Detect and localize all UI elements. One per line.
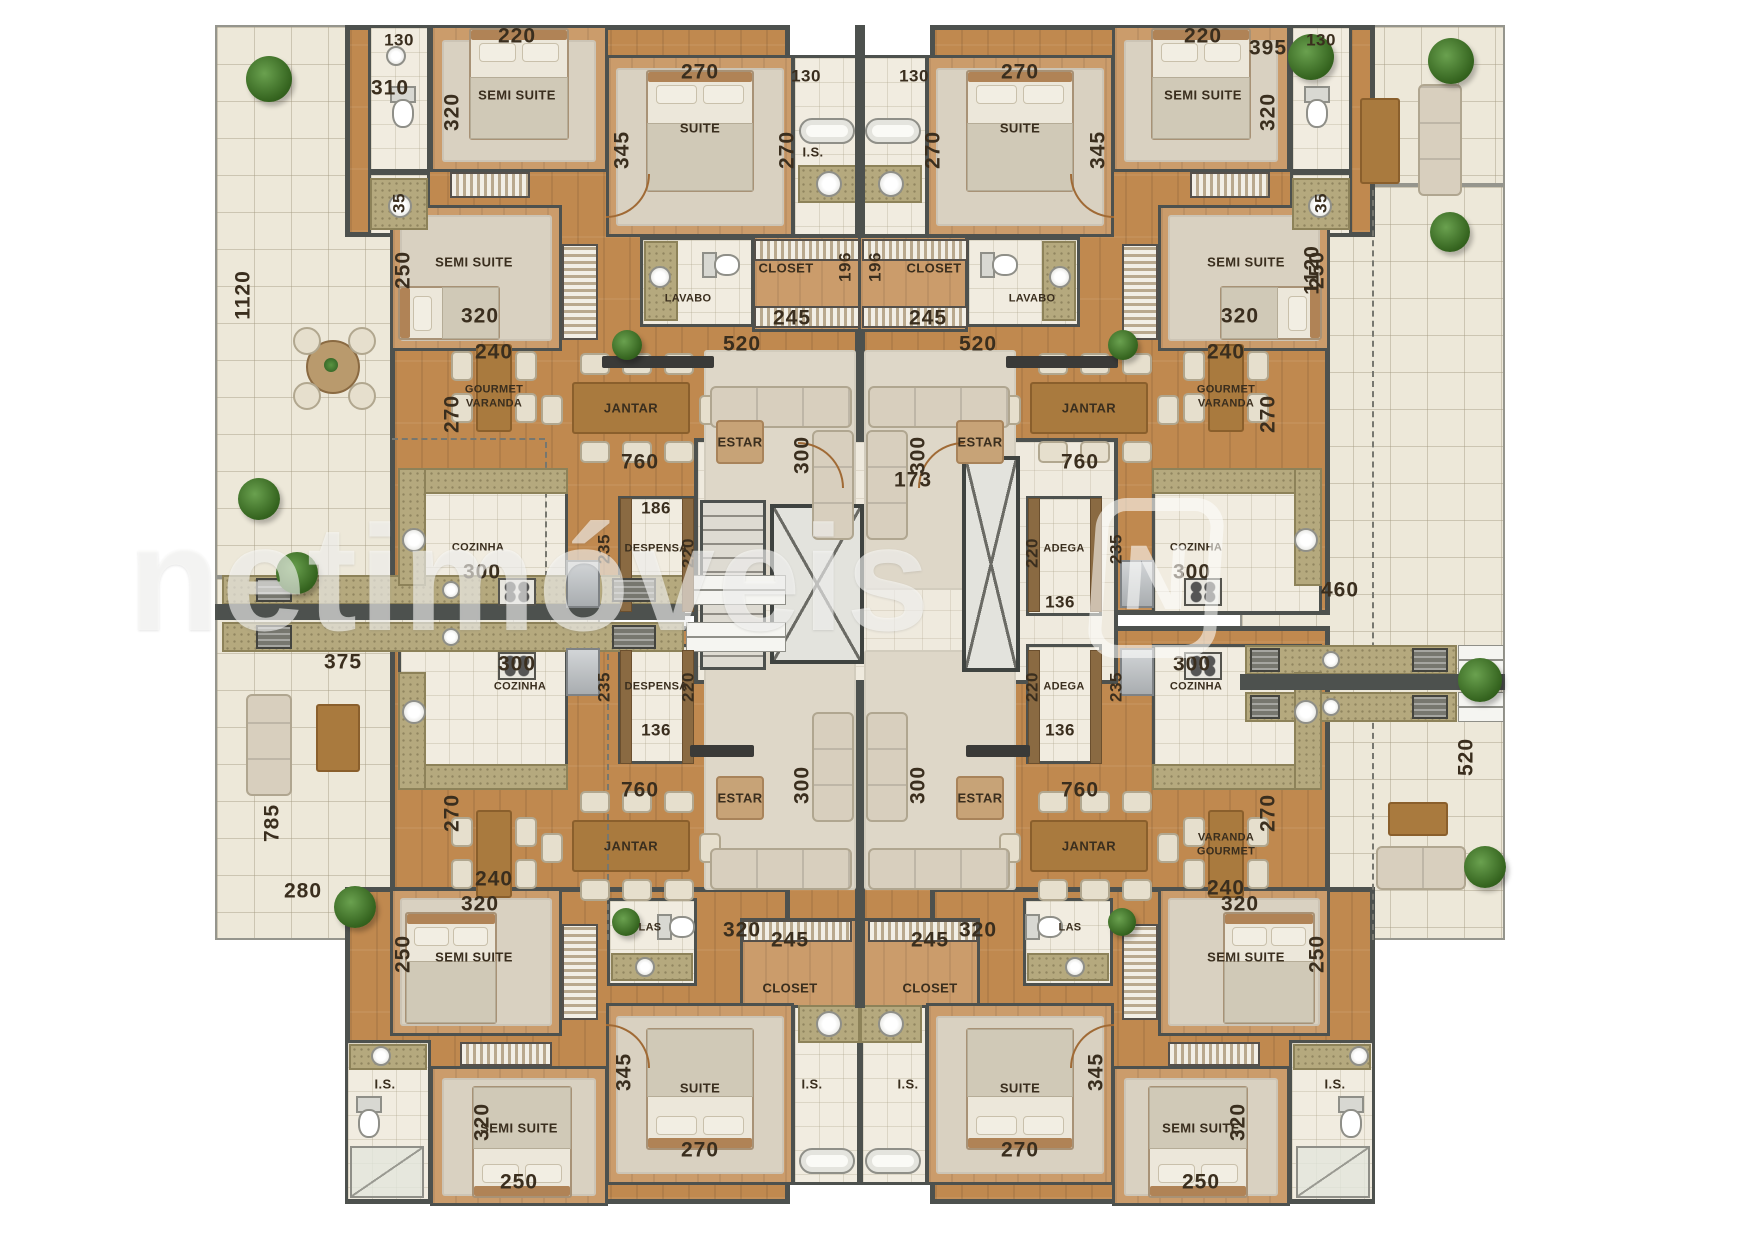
sink <box>878 1011 904 1037</box>
dimension-label: 345 <box>612 131 633 169</box>
bpil <box>1288 296 1307 331</box>
sink <box>1349 1046 1369 1066</box>
sink <box>816 171 842 197</box>
sink <box>1294 528 1318 552</box>
dimension-label: 220 <box>1024 672 1041 702</box>
terrace-sofa <box>1418 84 1462 196</box>
chair <box>451 351 473 381</box>
dimension-label: 320 <box>723 920 761 941</box>
room-label: I.S. <box>801 1078 822 1091</box>
toilet <box>356 1096 382 1138</box>
bathtub <box>865 118 921 144</box>
dimension-label: 250 <box>393 251 414 289</box>
room-label: ADEGA <box>1043 544 1084 555</box>
room-label: SEMI SUITE <box>435 256 513 269</box>
dimension-label: 760 <box>621 452 659 473</box>
dimension-label: 270 <box>923 131 944 169</box>
dimension-label: 520 <box>959 334 997 355</box>
dimension-label: 235 <box>596 672 613 702</box>
room-label: SEMI SUITE <box>478 89 556 102</box>
dimension-label: 240 <box>475 869 513 890</box>
chair <box>515 817 537 847</box>
sink <box>371 1046 391 1066</box>
bhead <box>407 914 495 924</box>
chair <box>1122 791 1152 813</box>
wardrobe <box>562 244 598 340</box>
tbowl <box>714 254 740 276</box>
dimension-label: 320 <box>1221 306 1259 327</box>
bathtub <box>799 1148 855 1174</box>
room-label: SUITE <box>1000 122 1040 135</box>
plant <box>1430 212 1470 252</box>
room-label: SUITE <box>680 1082 720 1095</box>
sink <box>1322 651 1340 669</box>
plant <box>246 56 292 102</box>
bpil <box>1023 85 1063 104</box>
party-wall-top <box>855 25 865 237</box>
floor-plan: 3101120130220SEMI SUITE32035270SUITE3451… <box>0 0 1754 1241</box>
chair <box>1122 879 1152 901</box>
dimension-label: 136 <box>641 722 671 739</box>
room-label: SUITE <box>1000 1082 1040 1095</box>
bbl <box>1224 961 1314 1023</box>
dimension-label: 245 <box>911 930 949 951</box>
toilet <box>657 914 695 940</box>
terrace-sofa <box>1376 846 1466 890</box>
room-label: I.S. <box>1324 1078 1345 1091</box>
dimension-label: 760 <box>1061 780 1099 801</box>
dimension-label: 250 <box>1182 1172 1220 1193</box>
dimension-label: 1120 <box>233 270 254 320</box>
bpil <box>703 85 743 104</box>
toilet <box>1338 1096 1364 1138</box>
tbowl <box>392 99 414 128</box>
terrace-sofa <box>246 694 292 796</box>
room-label: CLOSET <box>762 982 817 995</box>
room-label: SUITE <box>680 122 720 135</box>
chair <box>515 859 537 889</box>
sink <box>878 171 904 197</box>
chair <box>580 879 610 901</box>
dimension-label: 250 <box>500 1172 538 1193</box>
tv-console <box>1006 356 1118 368</box>
wardrobe <box>562 924 598 1020</box>
bpil <box>656 1116 696 1135</box>
room-label: I.S. <box>802 146 823 159</box>
room-label: LAS <box>639 923 662 934</box>
dimension-label: 250 <box>393 935 414 973</box>
room-label: JANTAR <box>1062 402 1116 415</box>
chair <box>1038 879 1068 901</box>
room-label: ADEGA <box>1043 682 1084 693</box>
dimension-label: 245 <box>771 930 809 951</box>
room-label: SEMI SUITE <box>1164 89 1242 102</box>
dimension-label: 760 <box>621 780 659 801</box>
plant <box>1458 658 1502 702</box>
chair <box>1183 351 1205 381</box>
watermark-logo-icon: N <box>1086 498 1225 658</box>
dimension-label: 173 <box>894 470 932 491</box>
chair <box>580 791 610 813</box>
sink <box>1322 698 1340 716</box>
tbowl <box>992 254 1018 276</box>
tbowl <box>358 1109 380 1138</box>
plant <box>1108 908 1136 936</box>
dimension-label: 520 <box>1456 738 1477 776</box>
dimension-label: 270 <box>1258 395 1279 433</box>
plant <box>1428 38 1474 84</box>
bhead <box>1225 914 1313 924</box>
bpil <box>976 85 1016 104</box>
dimension-label: 220 <box>498 26 536 47</box>
room-label: JANTAR <box>604 402 658 415</box>
vent <box>1250 648 1280 672</box>
projection-line <box>1372 190 1374 940</box>
bpil <box>976 1116 1016 1135</box>
rplant <box>324 358 338 372</box>
coffee-table <box>316 704 360 772</box>
bpil <box>1271 927 1306 946</box>
room-label: LAVABO <box>1009 294 1056 305</box>
dimension-label: 270 <box>777 131 798 169</box>
dimension-label: 130 <box>899 68 929 85</box>
grill <box>1412 648 1448 672</box>
counter <box>1294 468 1322 586</box>
tbowl <box>1340 1109 1362 1138</box>
chair <box>1183 859 1205 889</box>
toilet <box>980 252 1018 278</box>
room-label: COZINHA <box>1170 682 1222 693</box>
bathtub <box>799 118 855 144</box>
dimension-label: 250 <box>1307 935 1328 973</box>
room-label: LAS <box>1059 923 1082 934</box>
dimension-label: 136 <box>1045 722 1075 739</box>
plant <box>612 330 642 360</box>
sink <box>1049 266 1071 288</box>
chair <box>664 441 694 463</box>
room-label: SEMI SUITE <box>1207 951 1285 964</box>
party-wall-bottom <box>855 918 865 1008</box>
dimension-label: 240 <box>1207 342 1245 363</box>
dimension-label: 320 <box>472 1103 493 1141</box>
toilet <box>702 252 740 278</box>
dimension-label: 310 <box>371 78 409 99</box>
dimension-label: 320 <box>442 93 463 131</box>
bbl <box>406 961 496 1023</box>
dimension-label: 245 <box>773 308 811 329</box>
dimension-label: 220 <box>1184 26 1222 47</box>
dimension-label: 235 <box>1108 672 1125 702</box>
dimension-label: 240 <box>475 342 513 363</box>
sofa <box>812 712 854 822</box>
plant <box>334 886 376 928</box>
dimension-label: 196 <box>867 252 884 282</box>
tbowl <box>669 916 695 938</box>
dimension-label: 270 <box>442 395 463 433</box>
dimension-label: 35 <box>391 193 408 213</box>
chair <box>1247 859 1269 889</box>
dimension-label: 220 <box>680 672 697 702</box>
wardrobe <box>1122 244 1158 340</box>
room-label: LAVABO <box>665 294 712 305</box>
dimension-label: 270 <box>1258 794 1279 832</box>
double-bed <box>405 912 497 1024</box>
room-label: GOURMET <box>1197 385 1255 396</box>
chair <box>1157 833 1179 863</box>
dimension-label: 35 <box>1313 193 1330 213</box>
plant <box>1108 330 1138 360</box>
dimension-label: 280 <box>284 881 322 902</box>
sink <box>1065 957 1085 977</box>
dimension-label: 760 <box>1061 452 1099 473</box>
bbl <box>1152 77 1250 139</box>
shower <box>1296 1146 1370 1198</box>
elevator-2 <box>962 456 1020 672</box>
dimension-label: 320 <box>1258 93 1279 131</box>
sink <box>816 1011 842 1037</box>
dimension-label: 220 <box>1024 538 1041 568</box>
dimension-label: 320 <box>461 306 499 327</box>
counter <box>398 672 426 790</box>
room-label: SEMI SUITE <box>435 951 513 964</box>
wardrobe <box>1168 1042 1260 1066</box>
dimension-label: 320 <box>461 894 499 915</box>
bpil <box>453 927 488 946</box>
room-label: VARANDA <box>1198 399 1254 410</box>
room-label: JANTAR <box>1062 840 1116 853</box>
bathtub <box>865 1148 921 1174</box>
dimension-label: 270 <box>442 794 463 832</box>
coffee-table <box>1388 802 1448 836</box>
chair <box>1157 395 1179 425</box>
dimension-label: 270 <box>1001 62 1039 83</box>
tv-console <box>690 745 754 757</box>
dimension-label: 460 <box>1321 580 1359 601</box>
dimension-label: 270 <box>681 1140 719 1161</box>
wardrobe <box>1122 924 1158 1020</box>
dimension-label: 300 <box>908 766 929 804</box>
room-label: ESTAR <box>717 436 762 449</box>
toilet <box>1304 86 1330 128</box>
chair <box>580 441 610 463</box>
chair <box>515 351 537 381</box>
room-label: ESTAR <box>957 792 1002 805</box>
room-label: CLOSET <box>758 262 813 275</box>
wardrobe <box>460 1042 552 1066</box>
sofa <box>710 848 852 890</box>
dimension-label: 130 <box>1306 32 1336 49</box>
sink <box>649 266 671 288</box>
bbl <box>470 77 568 139</box>
round-table <box>296 330 366 400</box>
chair <box>451 859 473 889</box>
room-label: CLOSET <box>902 982 957 995</box>
bhead <box>400 288 410 338</box>
wardrobe <box>1190 172 1270 198</box>
dimension-label: 395 <box>1249 38 1287 59</box>
plant <box>612 908 640 936</box>
room-label: GOURMET <box>1197 847 1255 858</box>
dimension-label: 130 <box>384 32 414 49</box>
dimension-label: 196 <box>837 252 854 282</box>
room-label: GOURMET <box>465 385 523 396</box>
tbowl <box>1306 99 1328 128</box>
dimension-label: 785 <box>262 804 283 842</box>
chair <box>622 879 652 901</box>
room-label: VARANDA <box>466 399 522 410</box>
chair <box>348 327 376 355</box>
bpil <box>414 927 449 946</box>
dimension-label: 130 <box>791 68 821 85</box>
chair <box>541 395 563 425</box>
dimension-label: 345 <box>1086 1053 1107 1091</box>
chair <box>293 382 321 410</box>
bpil <box>1023 1116 1063 1135</box>
sink <box>635 957 655 977</box>
room-label: ESTAR <box>957 436 1002 449</box>
sink <box>1294 700 1318 724</box>
chair <box>1080 879 1110 901</box>
room-label: COZINHA <box>494 682 546 693</box>
room-label: JANTAR <box>604 840 658 853</box>
pantry-shelf <box>620 650 632 764</box>
room-label: SEMI SUITE <box>1207 256 1285 269</box>
grill <box>1412 695 1448 719</box>
dimension-label: 300 <box>792 436 813 474</box>
coffee-table <box>1360 98 1400 184</box>
dimension-label: 136 <box>1045 594 1075 611</box>
dimension-label: 320 <box>1221 894 1259 915</box>
toilet <box>1025 914 1063 940</box>
sofa <box>868 848 1010 890</box>
bpil <box>703 1116 743 1135</box>
room-label: CLOSET <box>906 262 961 275</box>
chair <box>664 791 694 813</box>
dimension-label: 345 <box>1088 131 1109 169</box>
vent <box>1250 695 1280 719</box>
bpil <box>1232 927 1267 946</box>
dimension-label: 520 <box>723 334 761 355</box>
tv-console <box>966 745 1030 757</box>
sofa <box>866 712 908 822</box>
projection-line <box>392 438 545 440</box>
bpil <box>413 296 432 331</box>
chair <box>1122 441 1152 463</box>
dimension-label: 320 <box>959 920 997 941</box>
chair <box>1247 351 1269 381</box>
bhead <box>1310 288 1320 338</box>
dimension-label: 270 <box>681 62 719 83</box>
dimension-label: 270 <box>1001 1140 1039 1161</box>
watermark: netimóveis <box>128 492 932 665</box>
sink <box>402 700 426 724</box>
bpil <box>656 85 696 104</box>
double-bed <box>1223 912 1315 1024</box>
dimension-label: 320 <box>1228 1103 1249 1141</box>
dimension-label: 245 <box>909 308 947 329</box>
chair <box>664 879 694 901</box>
cellar-shelf <box>1090 650 1102 764</box>
room-label: VARANDA <box>1198 833 1254 844</box>
room-label: I.S. <box>374 1078 395 1091</box>
plant <box>1464 846 1506 888</box>
room-label: I.S. <box>897 1078 918 1091</box>
chair <box>348 382 376 410</box>
dimension-label: 1120 <box>1302 245 1323 295</box>
wardrobe <box>450 172 530 198</box>
dimension-label: 300 <box>792 766 813 804</box>
dimension-label: 345 <box>614 1053 635 1091</box>
shower <box>350 1146 424 1198</box>
chair <box>541 833 563 863</box>
room-label: ESTAR <box>717 792 762 805</box>
